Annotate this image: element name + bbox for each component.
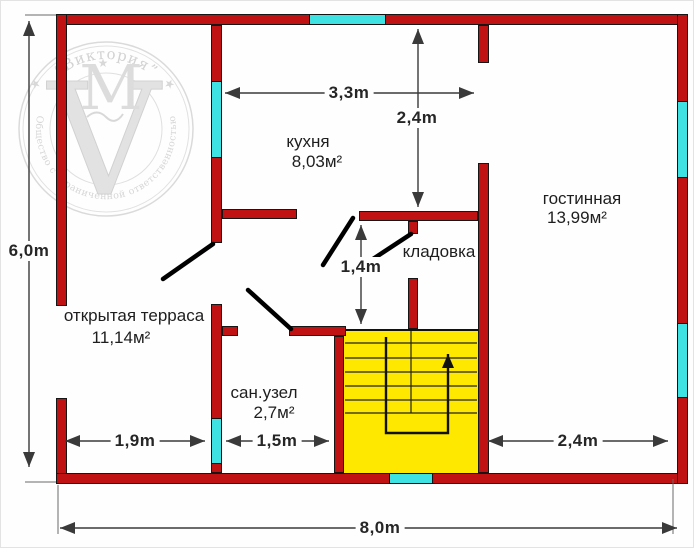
floor-plan: “Виктория” Общество с ограниченной ответ… [0,0,694,548]
svg-text:“Виктория”: “Виктория” [51,45,162,80]
watermark-outer-ring [19,42,193,216]
wall-living-west [478,163,489,473]
dim-label-kitchen-width: 3,3m [325,83,374,103]
room-label-kitchen-area: 8,03м² [292,152,342,172]
watermark-flourish [87,113,123,121]
wall-hall-north-stub [222,209,297,219]
wall-bathroom-north-stub [222,326,238,336]
dim-label-width-total: 8,0m [356,518,405,538]
watermark-mid-ring [23,46,189,212]
wall-storage-north [359,211,478,221]
room-label-kitchen-name: кухня [286,132,329,152]
room-label-living-name: гостинная [543,189,622,209]
room-label-storage-name: кладовка [403,242,476,262]
wall-kitchen-living-top [478,25,489,63]
door-swing-bathroom [248,290,291,329]
door-swing-terrace [163,244,213,279]
star-icon: ★ [28,75,44,92]
wall-left-lower [56,398,67,484]
wall-storage-west [408,278,418,329]
wall-left-upper [56,14,67,306]
watermark-company-text: “Виктория” [51,45,162,80]
wall-storage-door-stub [408,221,418,234]
window-bottom [389,473,433,484]
dim-label-height-total: 6,0m [5,241,54,261]
window-bathroom-west [211,418,222,464]
dim-label-hall-width: 1,4m [337,257,386,277]
window-living-upper [677,101,688,178]
wall-bottom [56,473,688,484]
dim-label-terrace-width: 1,9m [111,431,160,451]
room-label-terrace-name: открытая терраса [64,306,204,326]
wall-right [677,14,688,484]
star-icon: ★ [162,75,178,92]
watermark-ring-text: Общество с ограниченной ответственностью [33,115,179,202]
stairs-area [344,329,478,473]
dim-label-bathroom-width: 1,5m [253,431,302,451]
dim-label-living-width: 2,4m [554,431,603,451]
dim-label-kitchen-depth: 2,4m [393,108,442,128]
room-label-terrace-area: 11,14м² [92,328,151,348]
window-top [309,14,386,25]
wall-bathroom-north [289,326,346,336]
room-label-living-area: 13,99м² [547,208,607,228]
room-label-bathroom-area: 2,7м² [254,403,295,423]
wall-stairs-west [334,336,344,473]
window-living-lower [677,323,688,398]
window-kitchen-west [211,81,222,158]
svg-text:Общество с ограниченной ответс: Общество с ограниченной ответственностью [33,115,179,202]
room-label-bathroom-name: сан.узел [231,383,298,403]
watermark-monogram-m: M [79,51,142,124]
star-icon: ★ [98,56,109,70]
